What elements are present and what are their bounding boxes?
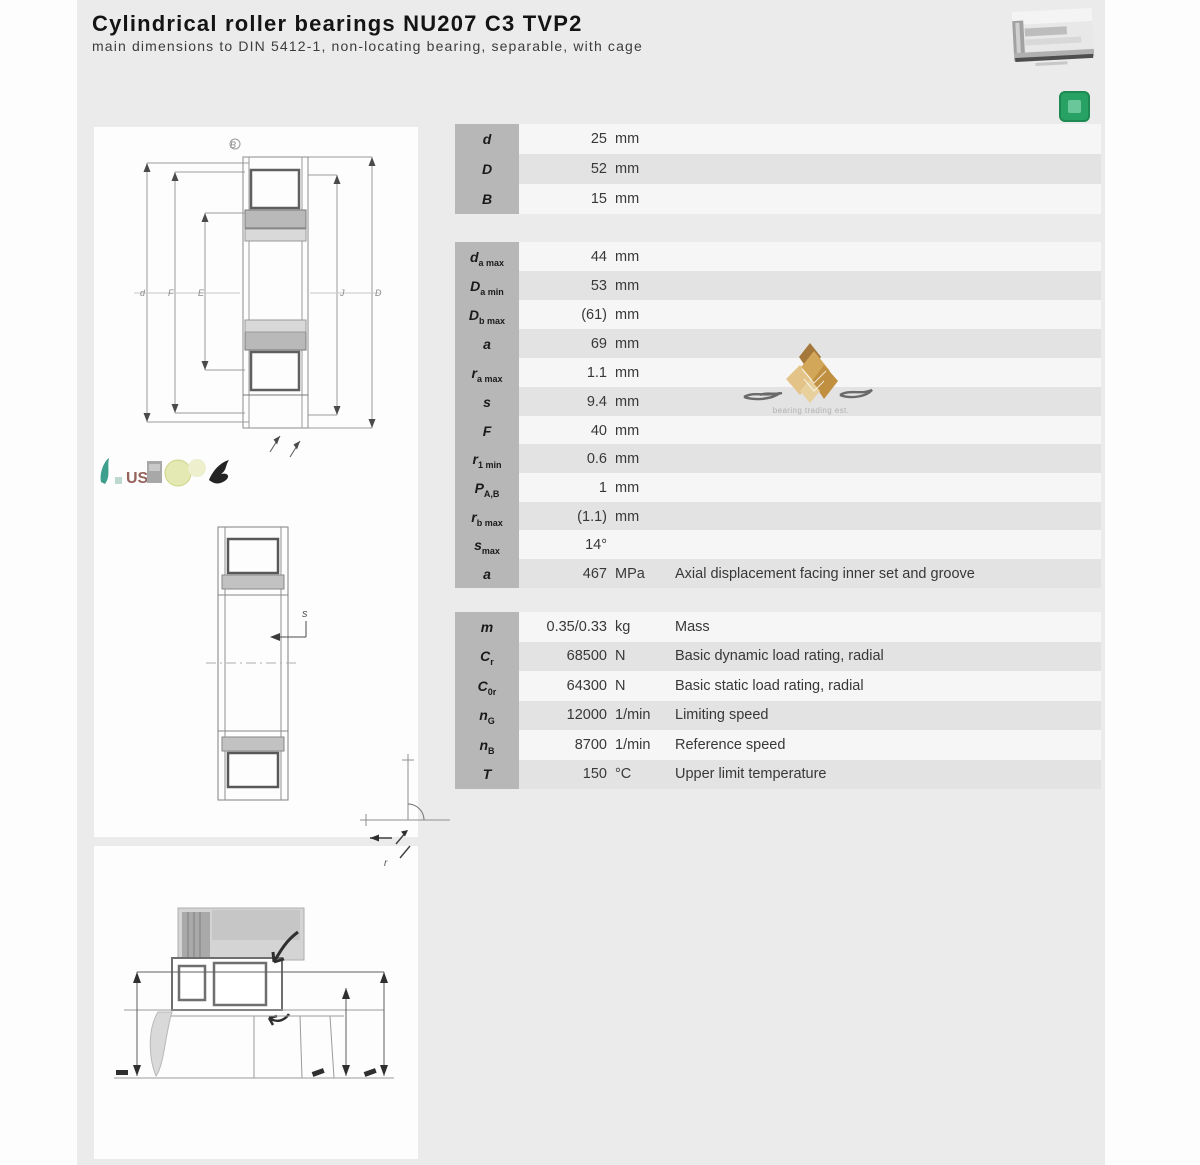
svg-text:J: J: [339, 288, 345, 298]
svg-text:F: F: [168, 288, 174, 298]
svg-text:D: D: [375, 288, 382, 298]
svg-text:E: E: [198, 288, 205, 298]
svg-text:bearing trading est.: bearing trading est.: [773, 406, 850, 415]
svg-text:US: US: [126, 470, 149, 487]
svg-text:r: r: [384, 858, 388, 869]
svg-text:s: s: [302, 608, 308, 620]
